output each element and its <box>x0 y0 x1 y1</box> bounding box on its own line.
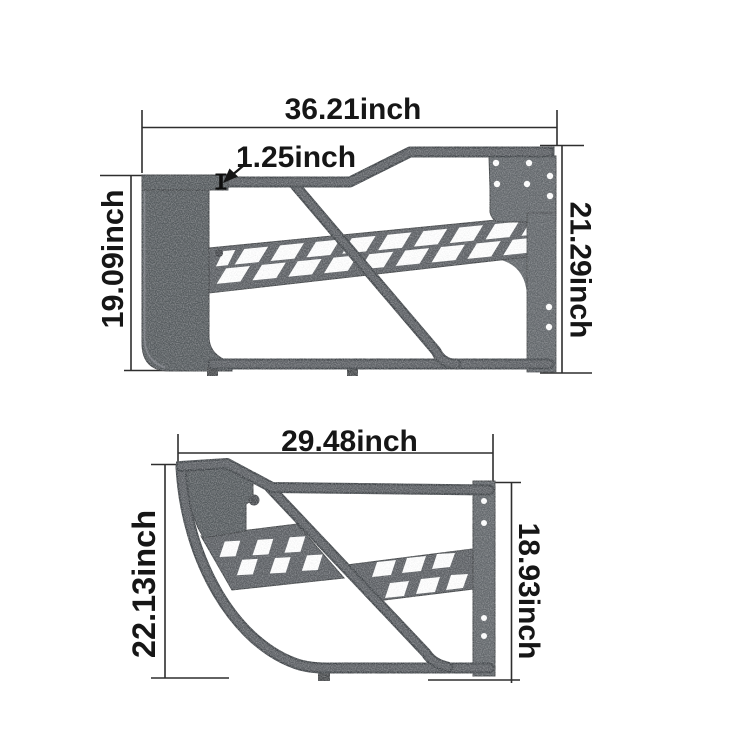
svg-text:21.29inch: 21.29inch <box>564 202 597 339</box>
svg-text:19.09inch: 19.09inch <box>96 189 130 328</box>
svg-text:22.13inch: 22.13inch <box>126 510 162 658</box>
svg-text:29.48inch: 29.48inch <box>281 425 418 458</box>
svg-text:18.93inch: 18.93inch <box>512 523 545 660</box>
svg-text:36.21inch: 36.21inch <box>285 93 422 126</box>
svg-text:1.25inch: 1.25inch <box>236 141 356 174</box>
